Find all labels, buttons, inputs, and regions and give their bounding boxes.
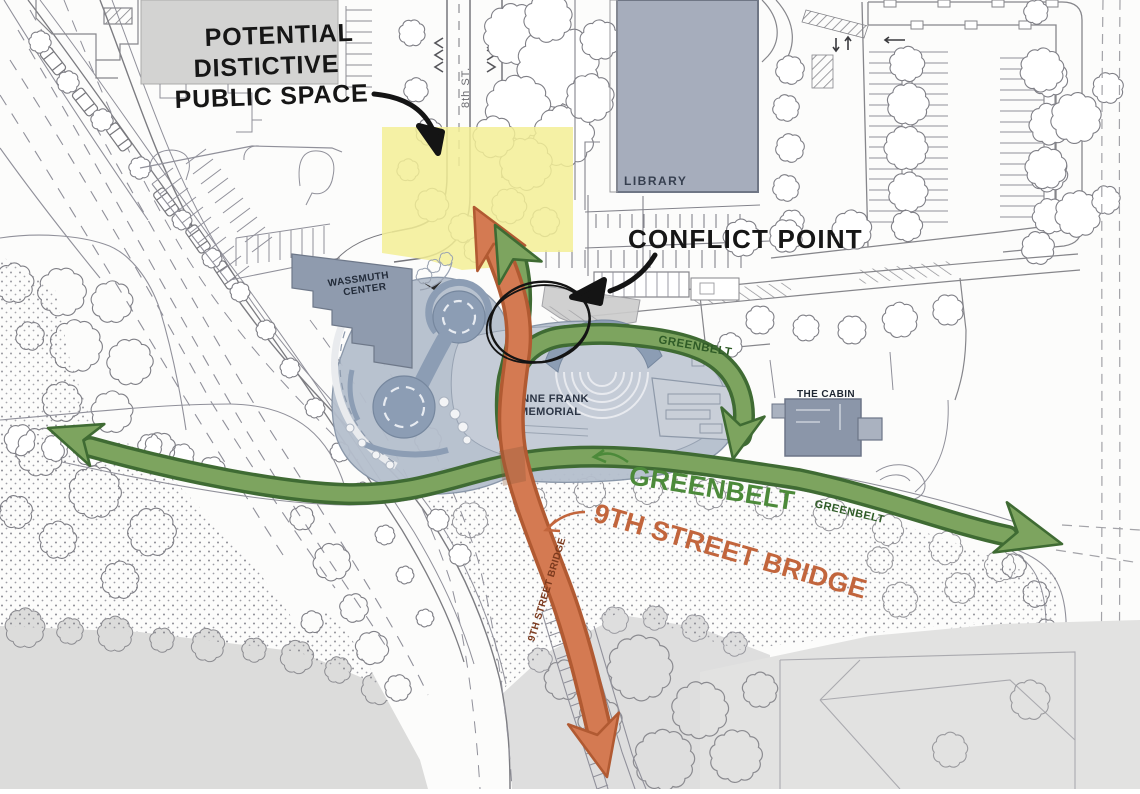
svg-text:DISTICTIVE: DISTICTIVE (193, 50, 339, 83)
svg-text:MEMORIAL: MEMORIAL (519, 406, 581, 418)
svg-text:THE CABIN: THE CABIN (797, 389, 855, 400)
svg-text:LIBRARY: LIBRARY (624, 174, 687, 188)
svg-text:8th ST.: 8th ST. (460, 67, 472, 108)
svg-text:POTENTIAL: POTENTIAL (204, 19, 354, 52)
svg-text:CONFLICT POINT: CONFLICT POINT (628, 224, 863, 254)
